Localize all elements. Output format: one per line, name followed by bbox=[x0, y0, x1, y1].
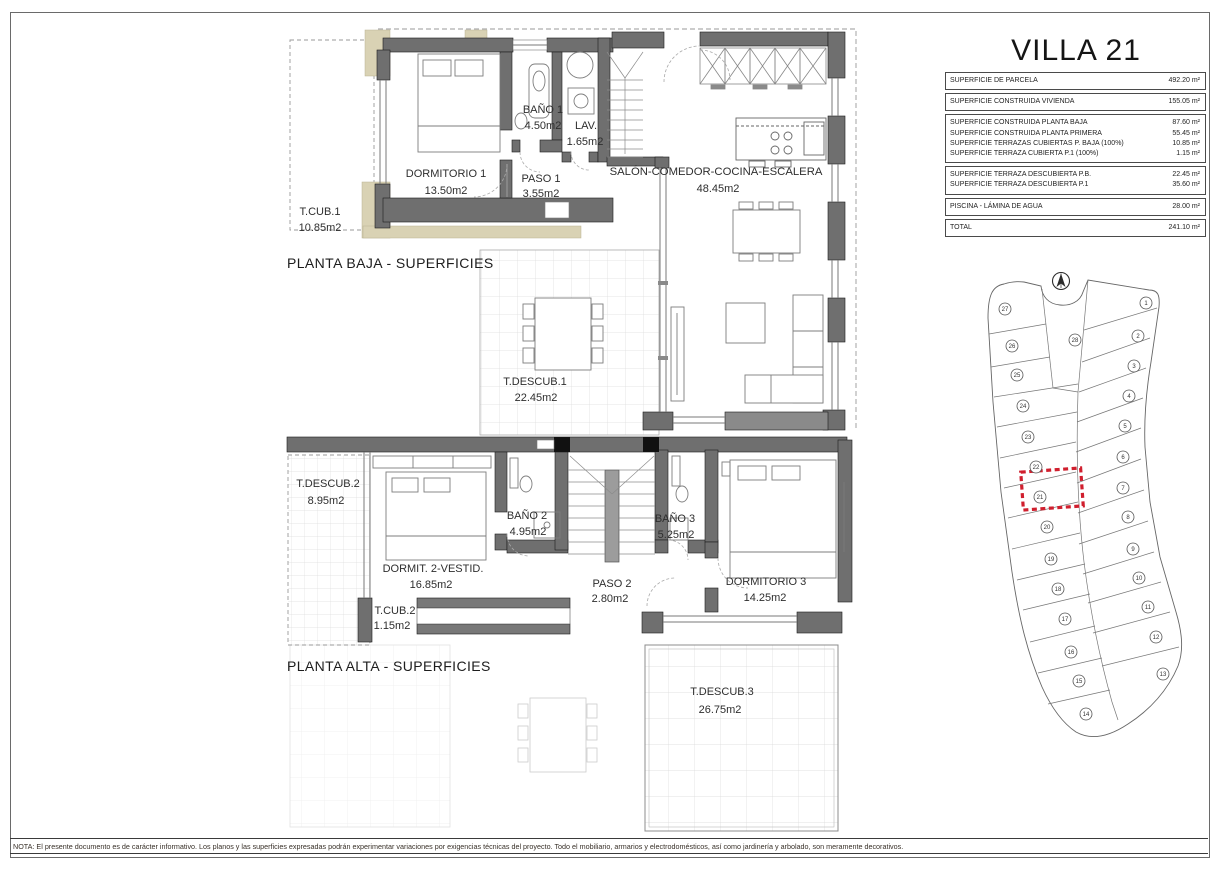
site-plot: 2 bbox=[1132, 330, 1144, 342]
table-row: SUPERFICIE TERRAZAS CUBIERTAS P. BAJA (1… bbox=[950, 139, 1200, 149]
svg-text:4.95m2: 4.95m2 bbox=[510, 526, 547, 538]
site-plot: 17 bbox=[1059, 613, 1071, 625]
site-plot: 13 bbox=[1157, 668, 1169, 680]
site-plot: 28 bbox=[1069, 334, 1081, 346]
table-group: SUPERFICIE DE PARCELA492.20 m² bbox=[945, 72, 1206, 90]
svg-text:T.DESCUB.3: T.DESCUB.3 bbox=[690, 686, 754, 698]
svg-text:4.50m2: 4.50m2 bbox=[525, 120, 562, 132]
site-plot: 6 bbox=[1117, 451, 1129, 463]
site-plot: 12 bbox=[1150, 631, 1162, 643]
bed-icon bbox=[418, 54, 500, 152]
svg-text:T.DESCUB.1: T.DESCUB.1 bbox=[503, 376, 567, 388]
svg-text:19: 19 bbox=[1048, 557, 1055, 563]
upper-floor-plan: T.DESCUB.2 8.95m2 DORMIT. 2-VESTID. 16.8… bbox=[278, 432, 890, 832]
svg-text:1.15m2: 1.15m2 bbox=[374, 620, 411, 632]
site-plot: 11 bbox=[1142, 601, 1154, 613]
table-row: SUPERFICIE DE PARCELA492.20 m² bbox=[950, 76, 1200, 86]
room-label-salon: SALÓN-COMEDOR-COCINA-ESCALERA 48.45m2 bbox=[610, 165, 823, 195]
svg-text:22.45m2: 22.45m2 bbox=[515, 392, 558, 404]
svg-text:16.85m2: 16.85m2 bbox=[410, 579, 453, 591]
tcub1-dashed-area bbox=[290, 40, 374, 230]
svg-text:13: 13 bbox=[1160, 672, 1167, 678]
svg-text:16: 16 bbox=[1068, 650, 1075, 656]
svg-text:18: 18 bbox=[1055, 587, 1062, 593]
svg-text:14.25m2: 14.25m2 bbox=[744, 592, 787, 604]
svg-text:26.75m2: 26.75m2 bbox=[699, 704, 742, 716]
room-label-bano2: BAÑO 2 4.95m2 bbox=[507, 509, 547, 538]
site-plot: 18 bbox=[1052, 583, 1064, 595]
svg-text:BAÑO 2: BAÑO 2 bbox=[507, 509, 547, 522]
outdoor-table-icon bbox=[523, 298, 603, 370]
svg-text:21: 21 bbox=[1037, 495, 1044, 501]
svg-text:20: 20 bbox=[1044, 525, 1051, 531]
areas-table: SUPERFICIE DE PARCELA492.20 m² SUPERFICI… bbox=[945, 72, 1206, 240]
tdescub3-terrace bbox=[645, 645, 838, 831]
tv-unit-icon bbox=[671, 307, 684, 401]
site-plot: 10 bbox=[1133, 572, 1145, 584]
room-label-dorm1: DORMITORIO 1 13.50m2 bbox=[406, 168, 486, 197]
site-plot-highlighted: 21 bbox=[1034, 491, 1046, 503]
site-plot: 23 bbox=[1022, 431, 1034, 443]
site-plot: 1 bbox=[1140, 297, 1152, 309]
svg-text:23: 23 bbox=[1025, 435, 1032, 441]
site-plot: 4 bbox=[1123, 390, 1135, 402]
furniture bbox=[373, 456, 836, 578]
note: NOTA: El presente documento es de caráct… bbox=[10, 838, 1208, 854]
wardrobe-icon bbox=[373, 456, 491, 468]
site-plot: 9 bbox=[1127, 543, 1139, 555]
table-row: SUPERFICIE CONSTRUIDA PLANTA BAJA87.60 m… bbox=[950, 118, 1200, 128]
kitchen-cabinets-icon bbox=[700, 48, 826, 89]
site-plot: 7 bbox=[1117, 482, 1129, 494]
svg-text:15: 15 bbox=[1076, 679, 1083, 685]
svg-text:2.80m2: 2.80m2 bbox=[592, 593, 629, 605]
svg-text:17: 17 bbox=[1062, 617, 1069, 623]
table-group: SUPERFICIE CONSTRUIDA VIVIENDA155.05 m² bbox=[945, 93, 1206, 111]
site-plot: 15 bbox=[1073, 675, 1085, 687]
dining-table-icon bbox=[733, 202, 800, 261]
coffee-table-icon bbox=[726, 303, 765, 343]
svg-text:26: 26 bbox=[1009, 344, 1016, 350]
svg-text:22: 22 bbox=[1033, 465, 1040, 471]
stairs-icon bbox=[568, 456, 655, 562]
upper-plan-title: PLANTA ALTA - SUPERFICIES bbox=[287, 658, 491, 674]
table-group: SUPERFICIE CONSTRUIDA PLANTA BAJA87.60 m… bbox=[945, 114, 1206, 163]
svg-text:SALÓN-COMEDOR-COCINA-ESCALERA: SALÓN-COMEDOR-COCINA-ESCALERA bbox=[610, 165, 823, 178]
table-row: SUPERFICIE CONSTRUIDA VIVIENDA155.05 m² bbox=[950, 97, 1200, 107]
site-plot: 19 bbox=[1045, 553, 1057, 565]
ground-plan-title: PLANTA BAJA - SUPERFICIES bbox=[287, 255, 494, 271]
svg-text:1.65m2: 1.65m2 bbox=[567, 136, 604, 148]
svg-text:T.CUB.2: T.CUB.2 bbox=[375, 605, 416, 617]
ground-floor-plan: T.CUB.1 10.85m2 DORMITORIO 1 13.50m2 BAÑ… bbox=[283, 26, 943, 438]
svg-text:48.45m2: 48.45m2 bbox=[697, 183, 740, 195]
svg-text:PASO 2: PASO 2 bbox=[593, 578, 632, 590]
svg-text:28: 28 bbox=[1072, 338, 1079, 344]
room-label-dorm3: DORMITORIO 3 14.25m2 bbox=[726, 576, 806, 604]
room-label-tcub2: T.CUB.2 1.15m2 bbox=[374, 605, 416, 632]
table-row: SUPERFICIE CONSTRUIDA PLANTA PRIMERA55.4… bbox=[950, 129, 1200, 139]
site-plot: 27 bbox=[999, 303, 1011, 315]
bed-icon bbox=[386, 472, 486, 560]
site-plot: 16 bbox=[1065, 646, 1077, 658]
kitchen-island-icon bbox=[736, 118, 826, 167]
table-row: SUPERFICIE TERRAZA CUBIERTA P.1 (100%)1.… bbox=[950, 149, 1200, 159]
svg-text:DORMITORIO 1: DORMITORIO 1 bbox=[406, 168, 486, 180]
table-row: SUPERFICIE TERRAZA DESCUBIERTA P.135.60 … bbox=[950, 180, 1200, 190]
table-group: PISCINA - LÁMINA DE AGUA28.00 m² bbox=[945, 198, 1206, 216]
table-row: TOTAL241.10 m² bbox=[950, 223, 1200, 233]
bed-icon bbox=[722, 460, 836, 578]
site-plot: 8 bbox=[1122, 511, 1134, 523]
site-plot: 14 bbox=[1080, 708, 1092, 720]
page-title: VILLA 21 bbox=[945, 34, 1207, 68]
site-plot: 3 bbox=[1128, 360, 1140, 372]
svg-text:10.85m2: 10.85m2 bbox=[299, 222, 342, 234]
svg-text:BAÑO 3: BAÑO 3 bbox=[655, 512, 695, 525]
svg-text:T.CUB.1: T.CUB.1 bbox=[300, 206, 341, 218]
table-group: SUPERFICIE TERRAZA DESCUBIERTA P.B.22.45… bbox=[945, 166, 1206, 194]
svg-text:DORMIT. 2-VESTID.: DORMIT. 2-VESTID. bbox=[383, 563, 484, 575]
washer-icon bbox=[568, 88, 594, 114]
table-group-total: TOTAL241.10 m² bbox=[945, 219, 1206, 237]
room-label-tcub1: T.CUB.1 10.85m2 bbox=[299, 206, 342, 234]
svg-text:24: 24 bbox=[1020, 404, 1027, 410]
room-label-paso2: PASO 2 2.80m2 bbox=[592, 578, 632, 605]
svg-text:14: 14 bbox=[1083, 712, 1090, 718]
svg-text:13.50m2: 13.50m2 bbox=[425, 185, 468, 197]
site-plot: 24 bbox=[1017, 400, 1029, 412]
site-plot: 26 bbox=[1006, 340, 1018, 352]
site-plan: 1 2 3 4 5 6 7 8 9 10 11 12 13 14 15 16 1… bbox=[952, 262, 1197, 757]
bath3-icons bbox=[670, 456, 688, 540]
svg-text:27: 27 bbox=[1002, 307, 1009, 313]
svg-text:8.95m2: 8.95m2 bbox=[308, 495, 345, 507]
svg-text:25: 25 bbox=[1014, 373, 1021, 379]
site-plot: 20 bbox=[1041, 521, 1053, 533]
svg-text:LAV.: LAV. bbox=[575, 120, 597, 132]
svg-text:T.DESCUB.2: T.DESCUB.2 bbox=[296, 478, 360, 490]
basin-icon bbox=[567, 52, 593, 78]
svg-text:PASO 1: PASO 1 bbox=[522, 173, 561, 185]
tdescub1-terrace bbox=[480, 250, 659, 435]
svg-text:5.25m2: 5.25m2 bbox=[658, 529, 695, 541]
sofa-icon bbox=[745, 295, 823, 403]
stairs-icon bbox=[607, 52, 643, 157]
site-plot: 22 bbox=[1030, 461, 1042, 473]
site-plot: 25 bbox=[1011, 369, 1023, 381]
room-label-paso1: PASO 1 3.55m2 bbox=[522, 173, 561, 200]
room-label-dorm2: DORMIT. 2-VESTID. 16.85m2 bbox=[383, 563, 484, 591]
table-row: SUPERFICIE TERRAZA DESCUBIERTA P.B.22.45… bbox=[950, 170, 1200, 180]
svg-text:BAÑO 1: BAÑO 1 bbox=[523, 103, 563, 116]
svg-text:3.55m2: 3.55m2 bbox=[523, 188, 560, 200]
svg-text:DORMITORIO 3: DORMITORIO 3 bbox=[726, 576, 806, 588]
north-arrow-icon bbox=[1053, 273, 1070, 290]
svg-text:11: 11 bbox=[1145, 605, 1152, 611]
table-row: PISCINA - LÁMINA DE AGUA28.00 m² bbox=[950, 202, 1200, 212]
site-plot: 5 bbox=[1119, 420, 1131, 432]
svg-text:10: 10 bbox=[1136, 576, 1143, 582]
svg-text:12: 12 bbox=[1153, 635, 1160, 641]
